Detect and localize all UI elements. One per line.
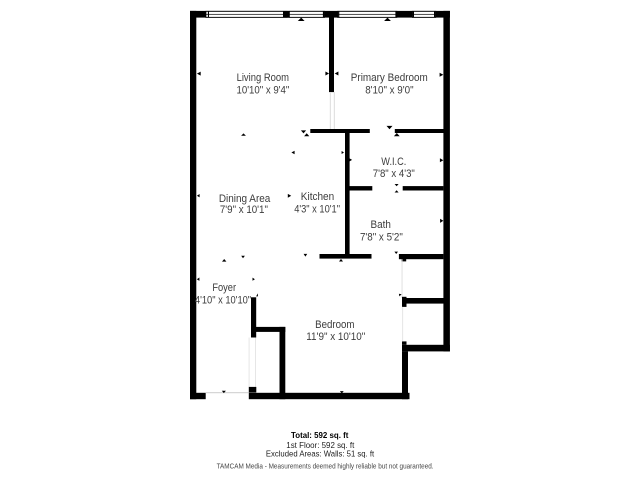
svg-text:TAMCAM Media - Measurements de: TAMCAM Media - Measurements deemed highl… [217, 463, 434, 470]
svg-text:W.I.C.: W.I.C. [381, 156, 406, 168]
svg-text:8'10" x 9'0": 8'10" x 9'0" [365, 84, 414, 96]
svg-text:7'8" x 4'3": 7'8" x 4'3" [373, 168, 415, 180]
svg-text:7'9" x 10'1": 7'9" x 10'1" [220, 204, 268, 216]
svg-text:Kitchen: Kitchen [301, 191, 334, 203]
svg-text:Living Room: Living Room [237, 72, 289, 84]
svg-text:Dining Area: Dining Area [219, 193, 271, 205]
svg-text:Bath: Bath [371, 219, 391, 231]
svg-text:Excluded Areas: Walls: 51 sq.: Excluded Areas: Walls: 51 sq. ft [266, 449, 375, 459]
svg-text:Primary Bedroom: Primary Bedroom [351, 72, 428, 84]
svg-text:Bedroom: Bedroom [315, 319, 354, 331]
svg-text:7'8" x 5'2": 7'8" x 5'2" [360, 231, 403, 243]
svg-text:Foyer: Foyer [212, 282, 236, 294]
svg-text:4'10" x 10'10": 4'10" x 10'10" [195, 295, 251, 307]
svg-text:10'10" x 9'4": 10'10" x 9'4" [237, 84, 290, 96]
svg-text:Total: 592 sq. ft: Total: 592 sq. ft [291, 430, 349, 440]
svg-text:4'3" x 10'1": 4'3" x 10'1" [294, 203, 340, 215]
svg-text:11'9" x 10'10": 11'9" x 10'10" [306, 331, 365, 343]
